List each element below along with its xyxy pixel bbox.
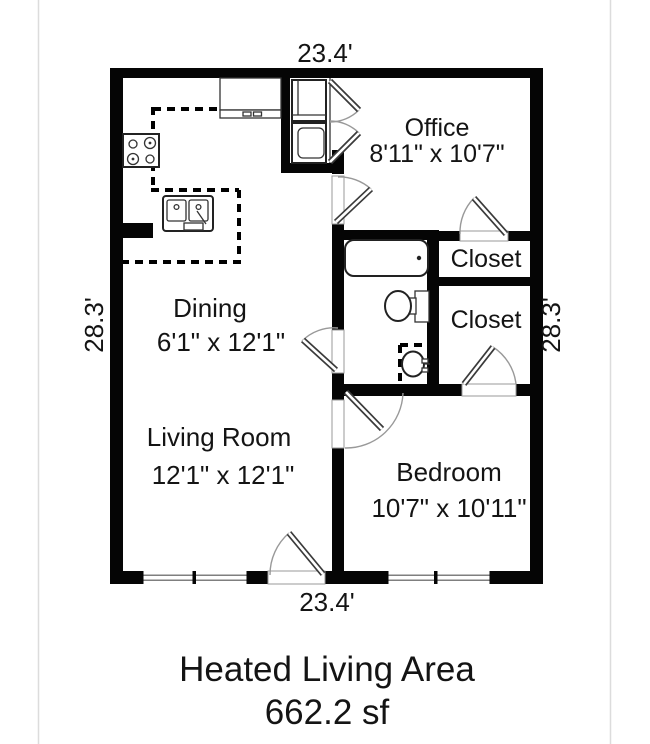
kitchen-fixtures: [123, 78, 330, 231]
bedroom-door-icon: [345, 392, 403, 448]
refrigerator-icon: [292, 80, 326, 121]
room-label-closet-lower: Closet: [451, 306, 522, 334]
bedroom-door-opening: [332, 400, 344, 448]
floor-plan-page: 23.4' 23.4' 28.3' 28.3' Office 8'11" x 1…: [0, 0, 650, 744]
room-size-living-room: 12'1" x 12'1": [152, 460, 295, 490]
dimension-top: 23.4': [297, 38, 353, 68]
footer-area: 662.2 sf: [265, 693, 390, 732]
kitchen-sink-icon: [163, 196, 213, 231]
room-label-office: Office: [405, 114, 470, 142]
living-room-window-icon: [140, 571, 250, 584]
entry-door-icon: [270, 533, 323, 575]
wall-closet-divider: [427, 277, 543, 286]
dimension-bottom: 23.4': [299, 587, 355, 617]
bathtub-icon: [345, 240, 428, 276]
footer-title: Heated Living Area: [179, 650, 475, 689]
washer-dryer-icon: [292, 123, 326, 163]
closet-lower-door-icon: [464, 347, 516, 384]
room-size-office: 8'11" x 10'7": [369, 140, 504, 168]
room-label-living-room: Living Room: [147, 422, 292, 452]
closet-upper-door-icon: [460, 198, 506, 234]
wall-top: [110, 68, 543, 78]
room-label-dining: Dining: [173, 293, 247, 323]
kitchen-counter-icon: [220, 78, 281, 118]
utility-closet-double-door-icon: [330, 81, 359, 162]
wall-living-bedroom-divider: [332, 448, 344, 571]
pedestal-sink-icon: [402, 352, 430, 377]
bathroom-fixtures: [345, 240, 430, 384]
stove-icon: [123, 134, 159, 167]
entry-door-opening: [268, 571, 325, 584]
room-size-dining: 6'1" x 12'1": [157, 327, 285, 357]
dimension-right: 28.3': [536, 297, 566, 353]
wall-bath-top: [332, 230, 439, 240]
room-label-bedroom: Bedroom: [396, 457, 502, 487]
wall-left: [110, 68, 123, 584]
closet-lower-door-opening: [462, 384, 516, 396]
wall-stub-kitchen: [123, 223, 153, 238]
toilet-icon: [385, 291, 429, 322]
wall-bath-left-lower: [332, 373, 344, 400]
floor-plan: 23.4' 23.4' 28.3' 28.3' Office 8'11" x 1…: [0, 0, 650, 744]
dimension-left: 28.3': [79, 297, 109, 353]
room-size-bedroom: 10'7" x 10'11": [371, 493, 526, 523]
wall-utility-closet-left: [281, 78, 290, 170]
bedroom-window-icon: [385, 571, 493, 584]
room-label-closet-upper: Closet: [451, 245, 522, 273]
kitchen-counter-dashed-outline: [123, 107, 241, 262]
